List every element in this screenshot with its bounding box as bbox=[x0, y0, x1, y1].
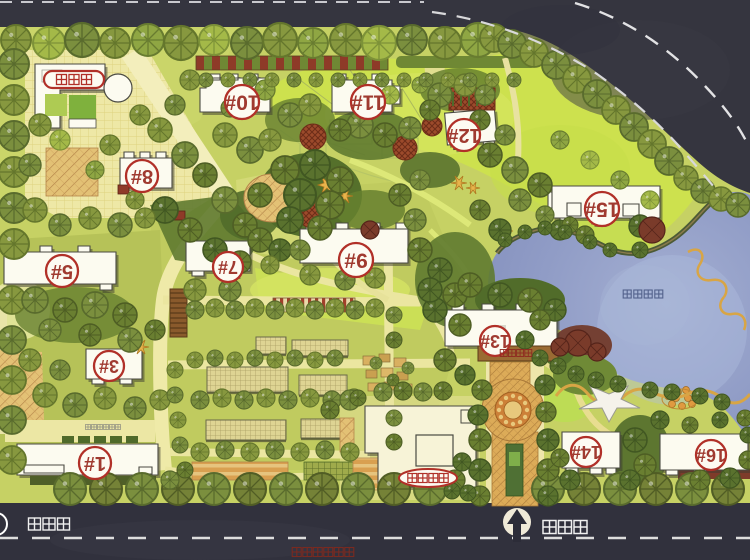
svg-text:5#: 5# bbox=[51, 260, 73, 282]
svg-text:1#: 1# bbox=[84, 452, 106, 474]
svg-text:12#: 12# bbox=[447, 124, 480, 146]
svg-text:8#: 8# bbox=[131, 165, 153, 187]
svg-text:9#: 9# bbox=[344, 249, 368, 272]
svg-text:3#: 3# bbox=[99, 356, 119, 376]
svg-text:15#: 15# bbox=[584, 198, 619, 221]
svg-text:14#: 14# bbox=[571, 442, 601, 462]
svg-text:11#: 11# bbox=[351, 91, 385, 114]
svg-text:13#: 13# bbox=[480, 331, 510, 351]
svg-text:16#: 16# bbox=[696, 445, 726, 465]
svg-text:7#: 7# bbox=[218, 257, 238, 277]
svg-text:10#: 10# bbox=[224, 91, 259, 114]
